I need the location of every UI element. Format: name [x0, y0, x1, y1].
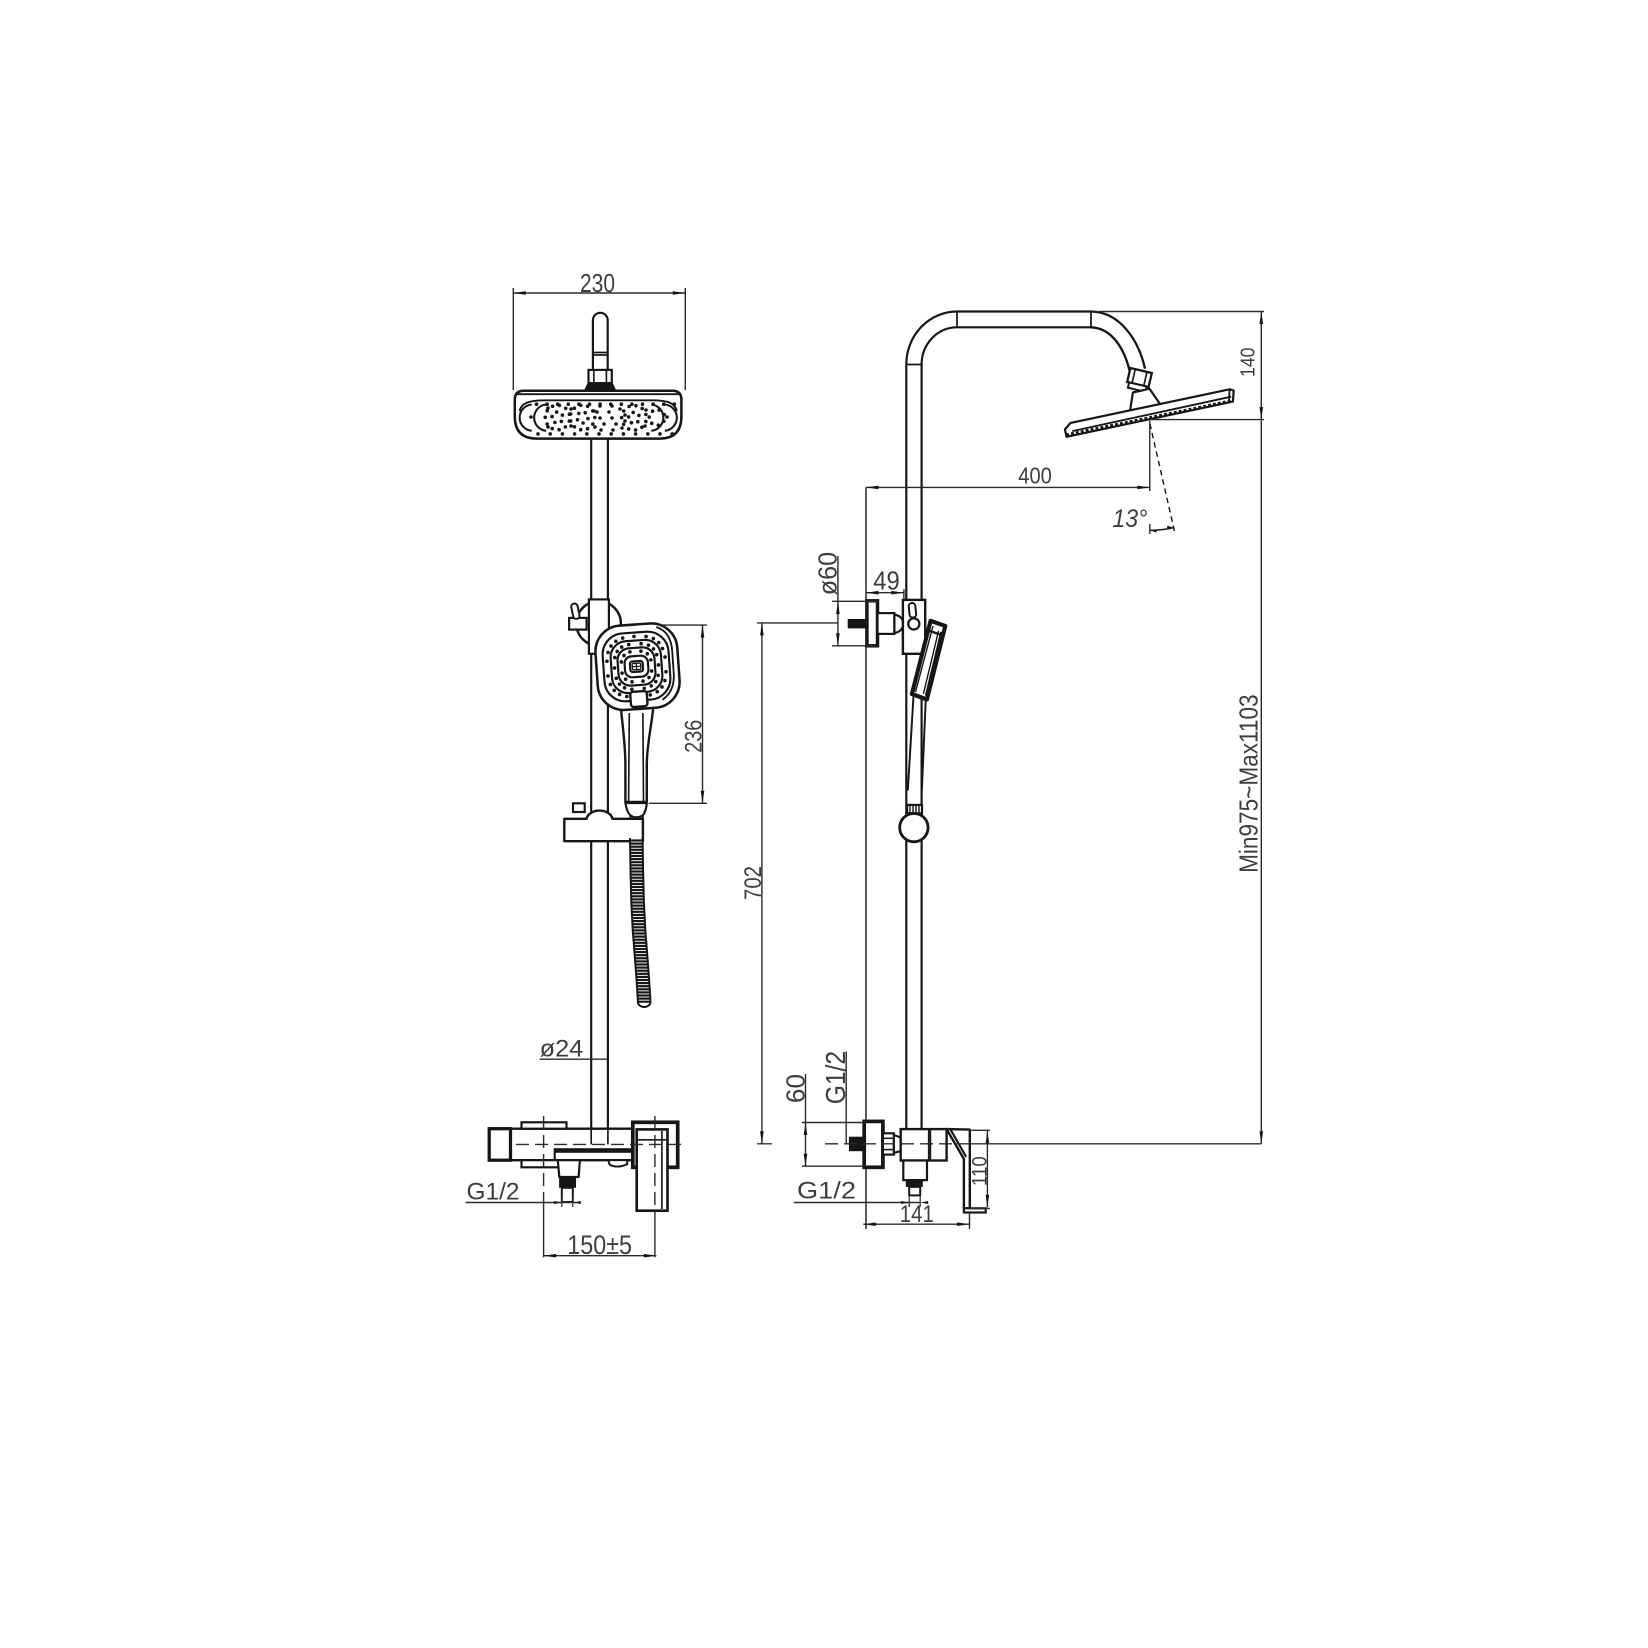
svg-text:49: 49: [873, 566, 900, 596]
svg-text:G1/2: G1/2: [797, 1178, 856, 1205]
svg-text:702: 702: [740, 866, 767, 900]
svg-text:140: 140: [1237, 348, 1260, 378]
svg-text:400: 400: [1018, 463, 1052, 489]
svg-text:Min975~Max1103: Min975~Max1103: [1234, 694, 1264, 873]
svg-text:150±5: 150±5: [567, 1230, 632, 1260]
svg-text:ø24: ø24: [540, 1036, 584, 1063]
svg-text:60: 60: [781, 1074, 811, 1103]
svg-text:G1/2: G1/2: [467, 1179, 520, 1206]
svg-text:110: 110: [967, 1156, 991, 1186]
svg-text:230: 230: [580, 268, 615, 298]
svg-text:G1/2: G1/2: [820, 1051, 851, 1104]
svg-text:141: 141: [900, 1201, 934, 1228]
svg-text:ø60: ø60: [813, 552, 843, 595]
svg-text:236: 236: [681, 720, 708, 753]
svg-text:13°: 13°: [1112, 505, 1147, 533]
